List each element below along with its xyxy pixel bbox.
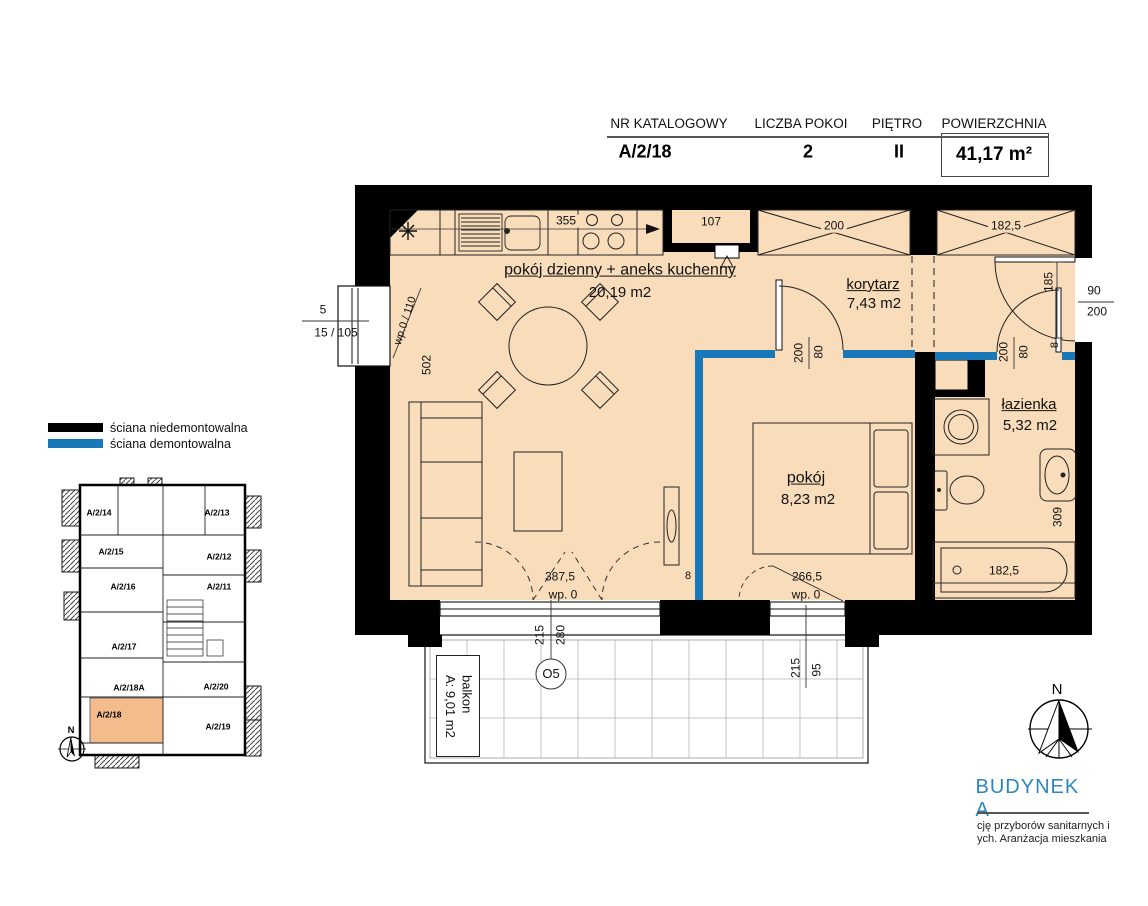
unit-label-a220: A/2/20 xyxy=(203,683,228,692)
dim-living-width: 387,5 xyxy=(545,571,575,584)
legend-demountable-wall-swatch xyxy=(48,439,103,448)
dim-wardrobe-a: 200 xyxy=(821,220,847,233)
dim-bedroom-width: 266,5 xyxy=(792,571,822,584)
overview-mini-plan xyxy=(58,478,261,768)
dim-living-wp0: wp. 0 xyxy=(549,589,578,602)
unit-label-a215: A/2/15 xyxy=(98,548,123,557)
dim-niche: 107 xyxy=(701,216,721,229)
unit-label-a217: A/2/17 xyxy=(111,643,136,652)
unit-label-a219: A/2/19 xyxy=(205,723,230,732)
dim-living-height: 502 xyxy=(421,355,434,375)
living-room-name: pokój dzienny + aneks kuchenny xyxy=(504,263,736,280)
unit-label-a214: A/2/14 xyxy=(86,509,111,518)
unit-label-a212: A/2/12 xyxy=(206,553,231,562)
dim-bathroom-door-width: 80 xyxy=(1018,345,1031,358)
mini-compass-north-label: N xyxy=(68,726,75,736)
dim-window-o5-height: 215 xyxy=(534,625,547,645)
dim-wardrobe-b: 182,5 xyxy=(988,220,1024,233)
bedroom-name: pokój xyxy=(787,471,825,488)
dim-window-bed-height: 215 xyxy=(790,658,803,678)
bathroom-name: łazienka xyxy=(1001,397,1056,413)
catalog-number-value: A/2/18 xyxy=(618,143,671,162)
floor-plan-sheet: NR KATALOGOWY A/2/18 LICZBA POKOI 2 PIĘT… xyxy=(0,0,1148,906)
dim-bedroom-door-height: 200 xyxy=(793,343,806,363)
dim-entry-width: 90 xyxy=(1087,285,1100,298)
catalog-number-label: NR KATALOGOWY xyxy=(610,117,727,131)
footer-note-line2: ych. Aranżacja mieszkania xyxy=(977,833,1107,845)
dim-bathroom-height: 309 xyxy=(1052,507,1065,527)
north-compass-icon xyxy=(1028,700,1092,758)
bathroom-area: 5,32 m2 xyxy=(1003,418,1057,434)
dim-wall-thickness-bath: 8 xyxy=(1050,342,1062,348)
compass-north-label: N xyxy=(1052,682,1063,698)
dim-window-o5-width: 280 xyxy=(555,625,568,645)
window-o5-tag: O5 xyxy=(542,667,559,681)
footer-note-line1: cję przyborów sanitarnych i xyxy=(977,820,1110,832)
header-rule xyxy=(607,136,1049,138)
unit-label-a213: A/2/13 xyxy=(204,509,229,518)
living-balcony-window xyxy=(440,602,660,616)
dim-window-bed-width: 95 xyxy=(811,663,824,676)
living-room-area: 20,19 m2 xyxy=(589,285,652,301)
dim-bathroom-door-height: 200 xyxy=(998,342,1011,362)
dim-counter: 355 xyxy=(553,215,579,228)
balcony-label-box: balkon A: 9,01 m2 xyxy=(436,655,480,757)
corridor-name: korytarz xyxy=(846,277,899,293)
dim-cut-b: 15 / 105 xyxy=(314,327,357,340)
bedroom-area: 8,23 m2 xyxy=(781,492,835,508)
floor-label: PIĘTRO xyxy=(872,117,922,131)
legend-solid-wall-label: ściana niedemontowalna xyxy=(110,421,248,435)
room-count-value: 2 xyxy=(803,143,813,162)
area-label: POWIERZCHNIA xyxy=(941,117,1046,131)
dim-bedroom-wp0: wp. 0 xyxy=(792,589,821,602)
balcony-deck xyxy=(425,635,868,763)
building-name: BUDYNEK A xyxy=(976,776,1091,822)
unit-label-a216: A/2/16 xyxy=(110,583,135,592)
dim-cut-a: 5 xyxy=(320,304,327,317)
area-value: 41,17 m² xyxy=(956,145,1032,165)
shaft-duct xyxy=(935,360,968,390)
balcony-area: A: 9,01 m2 xyxy=(442,675,458,738)
legend-demountable-wall-label: ściana demontowalna xyxy=(110,437,231,451)
dim-wall-thickness-bed: 8 xyxy=(685,571,691,583)
legend-solid-wall-swatch xyxy=(48,423,103,432)
unit-label-a218a: A/2/18A xyxy=(113,684,144,693)
floor-value: II xyxy=(894,143,904,162)
dim-entry-inside: 185 xyxy=(1043,272,1056,292)
dim-bathtub-width: 182,5 xyxy=(986,565,1022,578)
building-name-rule xyxy=(977,812,1089,814)
dim-bedroom-door-width: 80 xyxy=(813,345,826,358)
balcony-name: balkon xyxy=(458,675,474,738)
highlighted-unit-region xyxy=(90,698,163,743)
unit-label-a218-highlighted: A/2/18 xyxy=(96,711,121,720)
room-count-label: LICZBA POKOI xyxy=(754,117,847,131)
corridor-area: 7,43 m2 xyxy=(847,296,901,312)
dim-entry-height: 200 xyxy=(1087,306,1107,319)
unit-label-a211: A/2/11 xyxy=(207,583,232,592)
